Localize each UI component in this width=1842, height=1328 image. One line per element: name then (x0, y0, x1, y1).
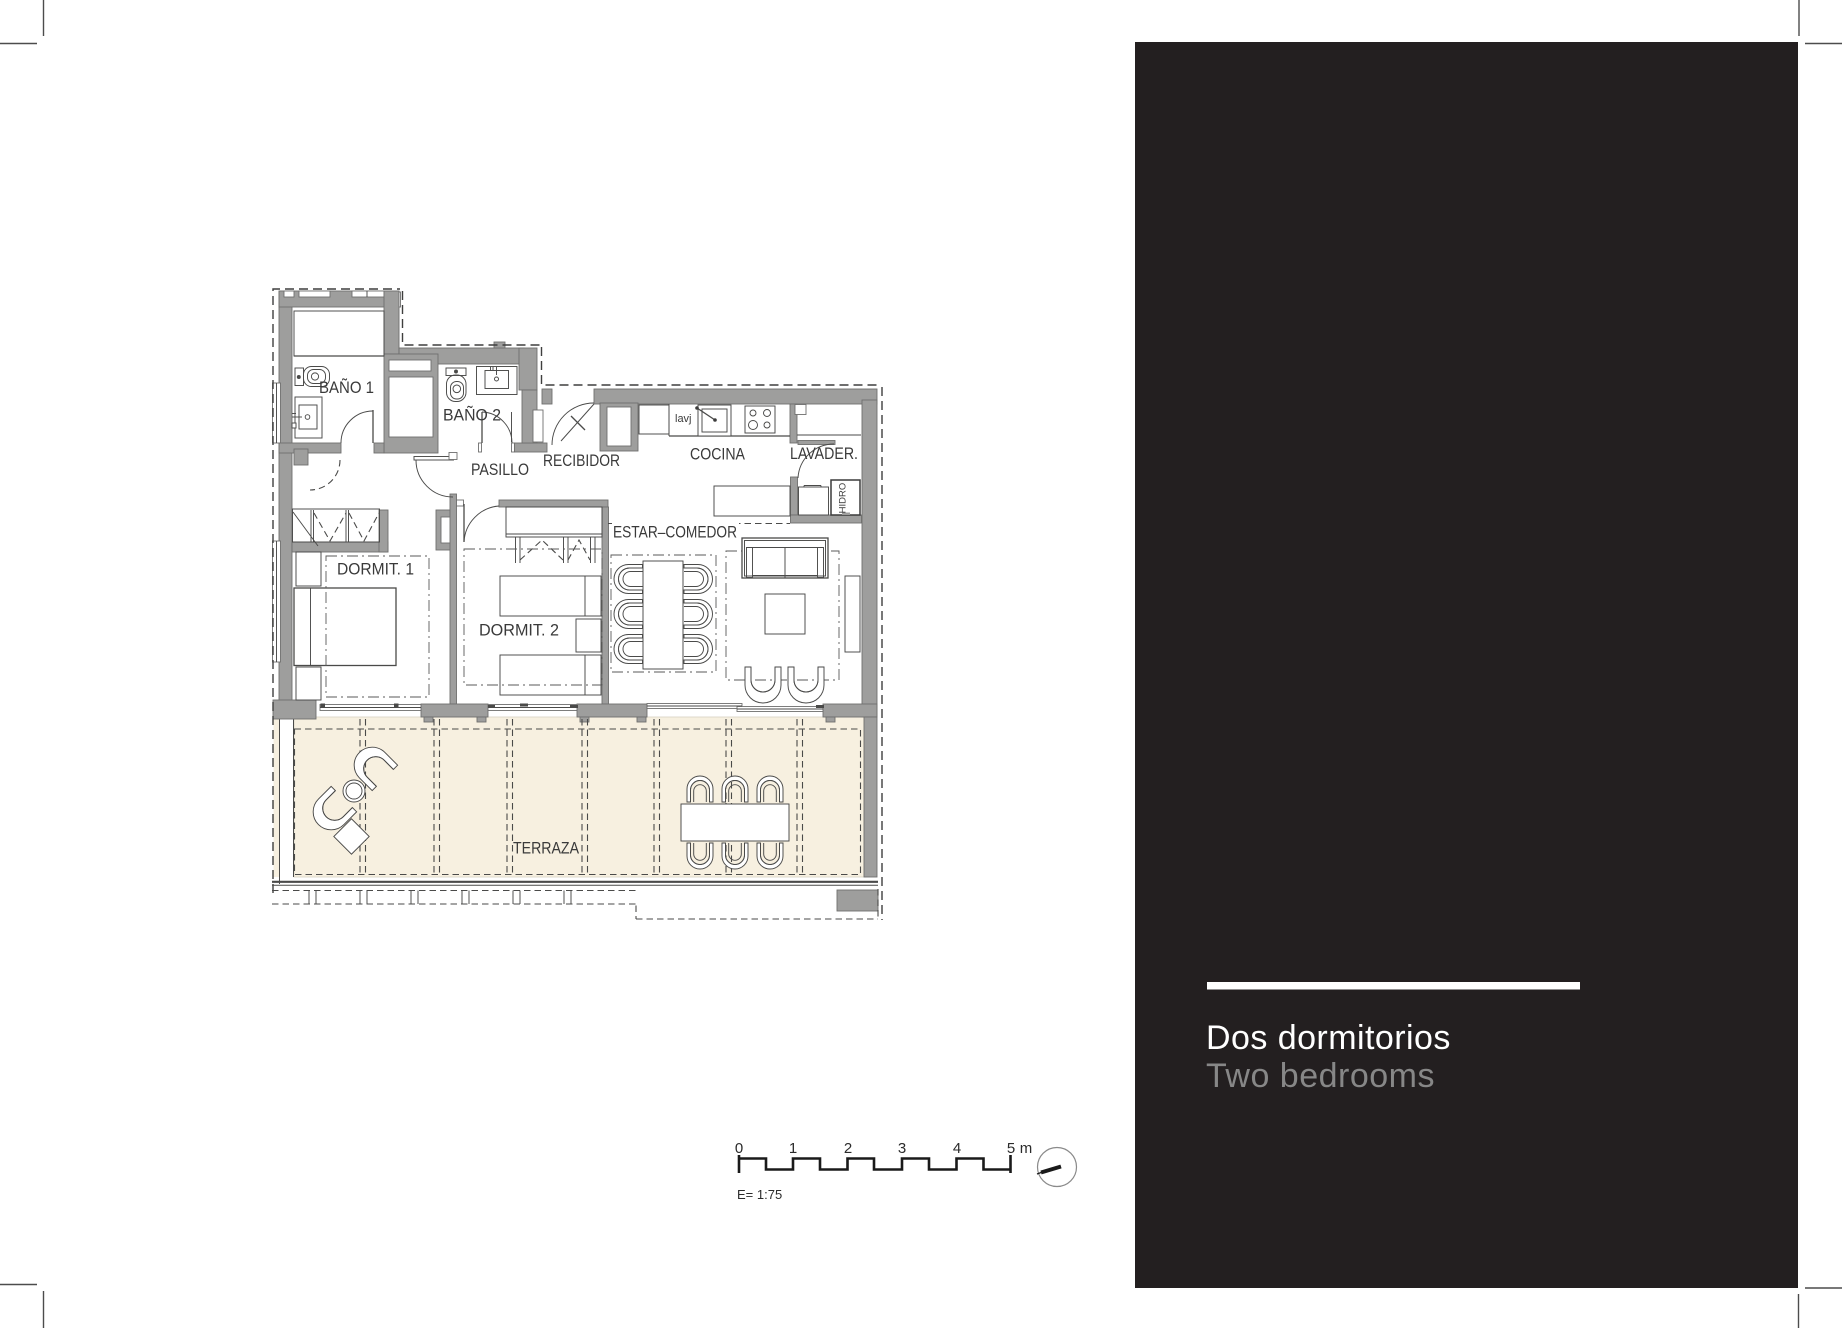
svg-text:TERRAZA: TERRAZA (513, 839, 580, 858)
svg-text:DORMIT. 2: DORMIT. 2 (479, 621, 559, 640)
svg-text:BAÑO 2: BAÑO 2 (443, 406, 501, 425)
svg-text:0: 0 (735, 1140, 743, 1157)
svg-text:Dos dormitorios: Dos dormitorios (1206, 1019, 1451, 1057)
svg-text:PASILLO: PASILLO (471, 460, 529, 479)
svg-text:ESTAR–COMEDOR: ESTAR–COMEDOR (613, 523, 737, 542)
svg-text:m: m (1020, 1140, 1033, 1157)
svg-text:2: 2 (844, 1140, 852, 1157)
svg-text:lavj: lavj (675, 413, 692, 425)
svg-text:E= 1:75: E= 1:75 (737, 1187, 782, 1202)
svg-text:BAÑO 1: BAÑO 1 (319, 378, 374, 397)
svg-text:DORMIT. 1: DORMIT. 1 (337, 560, 414, 579)
svg-text:HIDRO: HIDRO (838, 483, 849, 514)
svg-text:4: 4 (953, 1140, 961, 1157)
svg-text:1: 1 (789, 1140, 797, 1157)
svg-text:5: 5 (1007, 1140, 1015, 1157)
svg-text:COCINA: COCINA (690, 445, 746, 464)
svg-text:3: 3 (898, 1140, 906, 1157)
svg-text:RECIBIDOR: RECIBIDOR (543, 451, 620, 470)
svg-text:LAVADER.: LAVADER. (790, 444, 858, 463)
svg-text:Two bedrooms: Two bedrooms (1206, 1057, 1435, 1095)
